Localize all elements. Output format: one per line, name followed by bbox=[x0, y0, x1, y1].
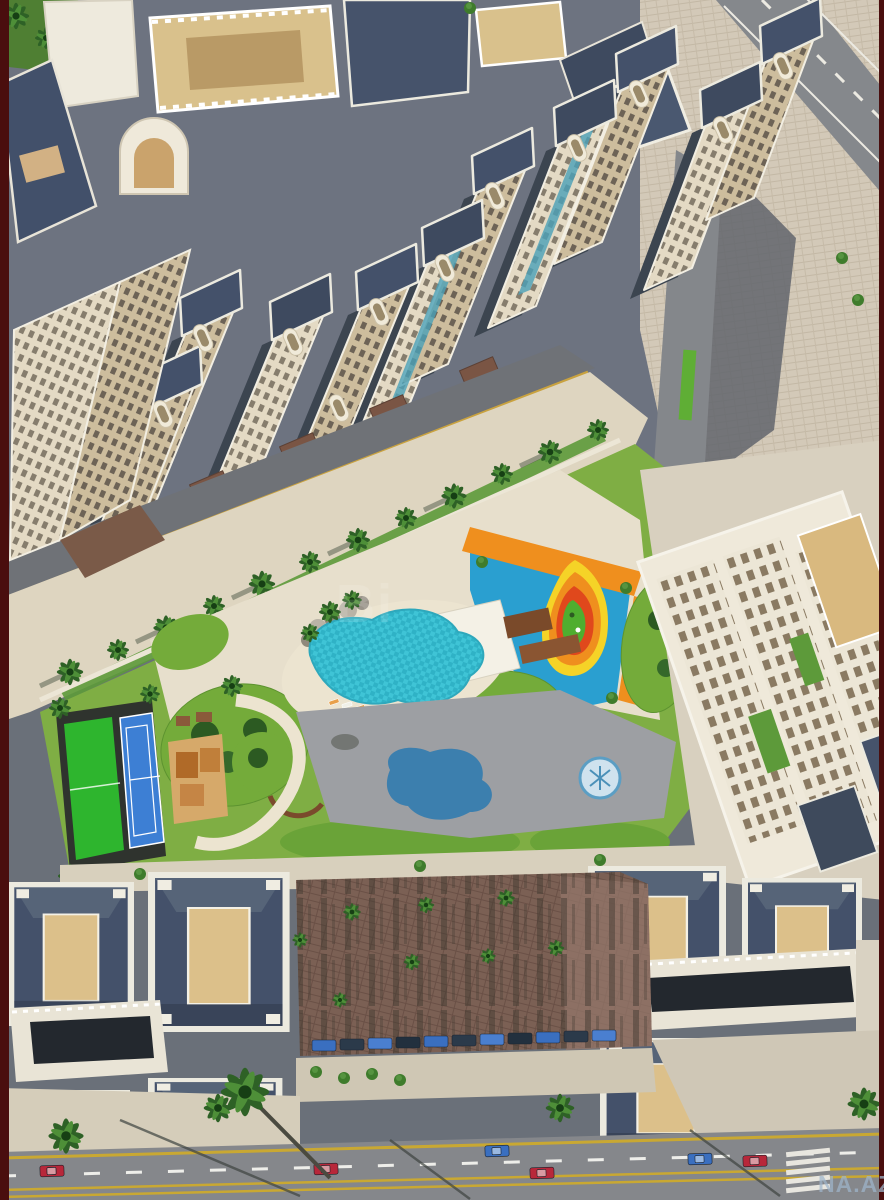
right-maroon-bar bbox=[879, 0, 884, 1200]
terrace bbox=[168, 734, 228, 824]
bottom-district bbox=[0, 845, 884, 1200]
watermark-center: Bi bbox=[336, 574, 394, 634]
plaza-tree-shadow bbox=[331, 734, 359, 750]
scene-canvas: Bi NA.AZ bbox=[0, 0, 884, 1200]
watermark-bottom-right: NA.AZ bbox=[818, 1171, 884, 1197]
parking-plaza bbox=[292, 872, 656, 1102]
right-building-block bbox=[638, 440, 884, 900]
left-maroon-bar bbox=[0, 0, 9, 1200]
aerial-render-image: Bi NA.AZ bbox=[0, 0, 884, 1200]
